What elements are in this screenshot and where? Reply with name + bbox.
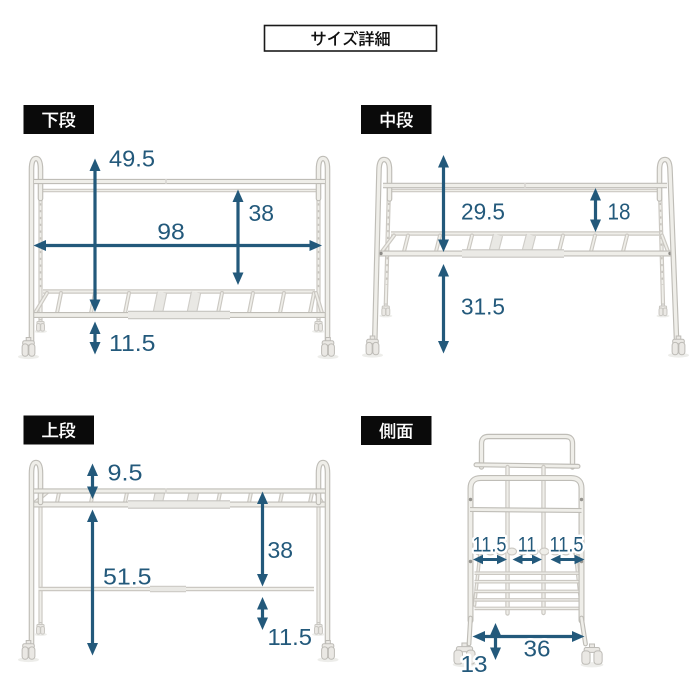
svg-text:13: 13 bbox=[461, 651, 488, 677]
svg-text:18: 18 bbox=[608, 199, 631, 225]
svg-text:11.5: 11.5 bbox=[473, 533, 507, 557]
svg-text:11.5: 11.5 bbox=[109, 330, 156, 356]
svg-text:51.5: 51.5 bbox=[103, 564, 152, 590]
svg-text:11.5: 11.5 bbox=[268, 624, 313, 650]
svg-text:36: 36 bbox=[524, 636, 551, 662]
svg-text:31.5: 31.5 bbox=[461, 294, 505, 320]
svg-text:9.5: 9.5 bbox=[108, 460, 143, 486]
svg-text:11.5: 11.5 bbox=[550, 533, 584, 557]
svg-text:11: 11 bbox=[518, 533, 537, 557]
svg-text:38: 38 bbox=[249, 200, 275, 226]
svg-text:29.5: 29.5 bbox=[461, 199, 505, 225]
svg-text:49.5: 49.5 bbox=[109, 146, 155, 172]
svg-text:98: 98 bbox=[157, 219, 185, 245]
svg-text:38: 38 bbox=[268, 537, 294, 563]
